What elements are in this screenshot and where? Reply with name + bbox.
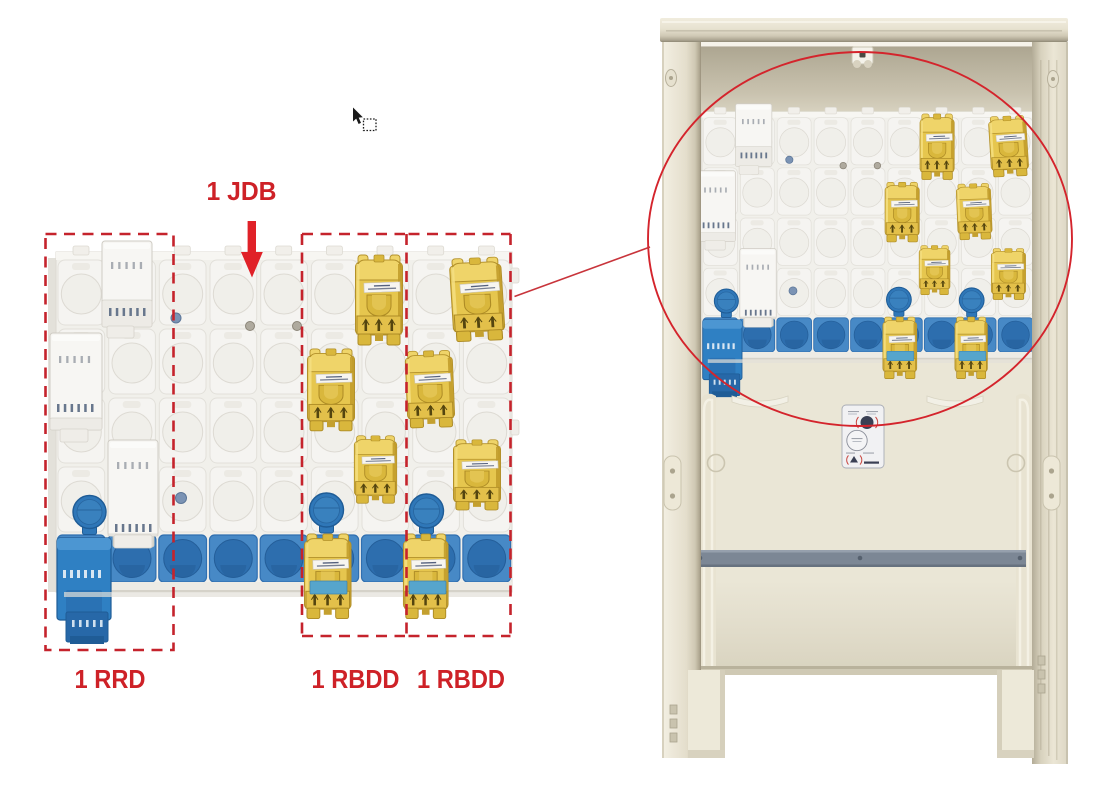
svg-text:1 RBDD: 1 RBDD	[417, 664, 505, 694]
svg-text:1 JDB: 1 JDB	[207, 176, 277, 206]
svg-text:1 RRD: 1 RRD	[75, 664, 146, 694]
svg-text:1 RBDD: 1 RBDD	[312, 664, 400, 694]
